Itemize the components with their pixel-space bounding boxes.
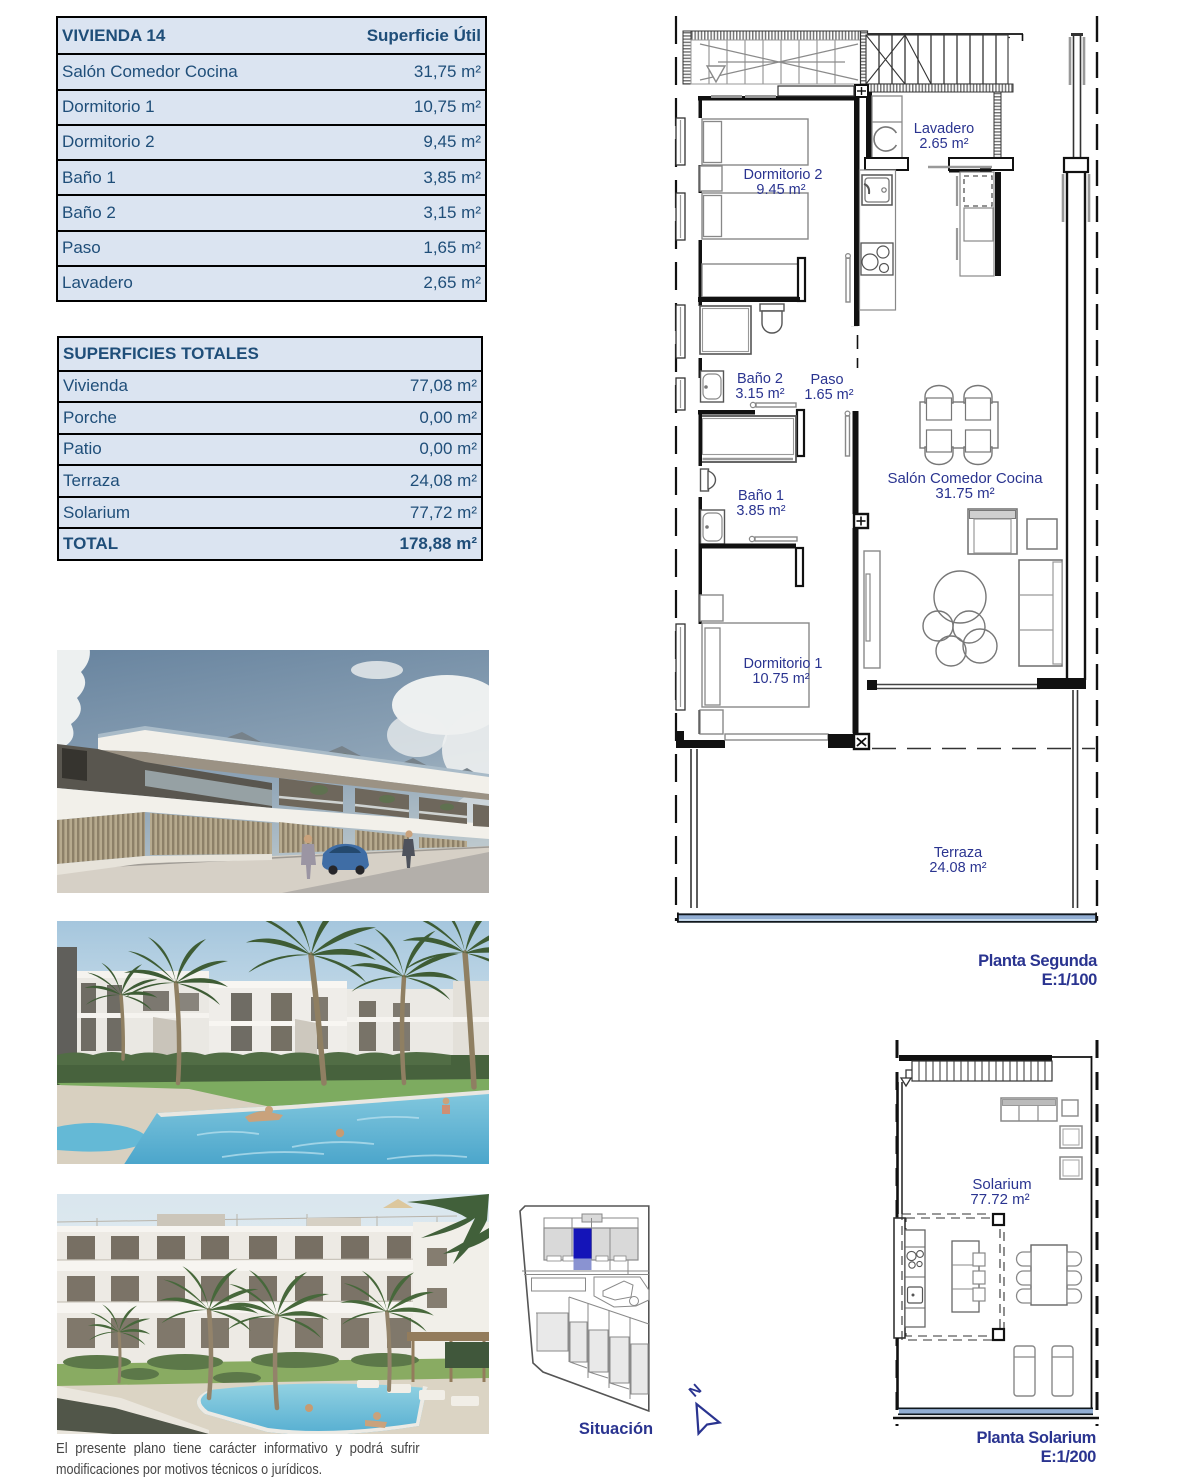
svg-text:24.08 m²: 24.08 m²: [929, 860, 986, 876]
svg-text:10.75 m²: 10.75 m²: [752, 671, 809, 687]
svg-text:3.15 m²: 3.15 m²: [735, 386, 784, 402]
svg-text:Terraza: Terraza: [934, 845, 983, 861]
svg-text:2.65 m²: 2.65 m²: [919, 136, 968, 152]
svg-text:3.85 m²: 3.85 m²: [736, 503, 785, 519]
svg-text:Baño 2: Baño 2: [737, 371, 783, 387]
svg-text:Paso: Paso: [810, 372, 843, 388]
svg-text:Situación: Situación: [579, 1420, 653, 1438]
svg-text:E:1/100: E:1/100: [1042, 971, 1098, 989]
svg-text:Dormitorio 1: Dormitorio 1: [744, 656, 823, 672]
svg-text:Dormitorio 2: Dormitorio 2: [744, 167, 823, 183]
svg-text:Lavadero: Lavadero: [914, 121, 974, 137]
svg-text:E:1/200: E:1/200: [1041, 1448, 1097, 1466]
svg-text:Planta Solarium: Planta Solarium: [977, 1429, 1096, 1447]
svg-text:1.65 m²: 1.65 m²: [804, 387, 853, 403]
svg-text:Planta Segunda: Planta Segunda: [978, 952, 1098, 970]
svg-text:77.72 m²: 77.72 m²: [970, 1191, 1029, 1208]
svg-text:31.75 m²: 31.75 m²: [935, 485, 994, 502]
svg-text:9.45 m²: 9.45 m²: [756, 182, 805, 198]
svg-text:Baño 1: Baño 1: [738, 488, 784, 504]
svg-text:N: N: [686, 1381, 705, 1401]
